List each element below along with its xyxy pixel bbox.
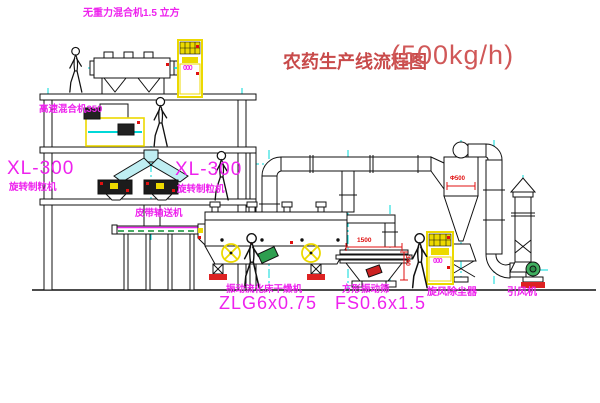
- dryer-model-label: ZLG6x0.75: [219, 294, 317, 313]
- screen-height-dimension: 340: [403, 255, 410, 266]
- fan-label: 引风机: [507, 288, 537, 299]
- gravity-free-mixer-drawing: [90, 52, 186, 94]
- flow-diagram-page: 无重力混合机1.5 立方 农药生产线流程图 (500kg/h) 高速混合机350…: [0, 0, 600, 403]
- cyclone-drawing: [444, 142, 526, 282]
- cyclone-label: 旋风除尘器: [427, 288, 477, 299]
- screen-width-dimension: 1500: [357, 238, 371, 245]
- worker-ground-right: [413, 234, 428, 288]
- worker-top-floor: [70, 47, 82, 92]
- cabinet-top-display: 000: [183, 65, 192, 72]
- stack-fan-drawing: [510, 178, 545, 288]
- screen-model-label: FS0.6x1.5: [335, 294, 426, 313]
- vibrating-screen-drawing: [336, 243, 412, 287]
- granulator-right-name: 旋转制粒机: [177, 185, 225, 195]
- granulator-left-model: XL-300: [7, 159, 74, 179]
- cyclone-diameter-dimension: Φ500: [450, 176, 465, 182]
- floor2-mixer-label: 高速混合机350: [39, 105, 102, 115]
- diagram-title-capacity: (500kg/h): [391, 41, 514, 69]
- granulator-right-model: XL-300: [175, 160, 242, 180]
- belt-conveyor-label: 皮带输送机: [135, 209, 183, 219]
- cabinet-right-display: 000: [433, 258, 442, 265]
- granulator-left-name: 旋转制粒机: [9, 183, 57, 193]
- top-mixer-label: 无重力混合机1.5 立方: [83, 9, 180, 20]
- worker-floor2: [154, 98, 167, 146]
